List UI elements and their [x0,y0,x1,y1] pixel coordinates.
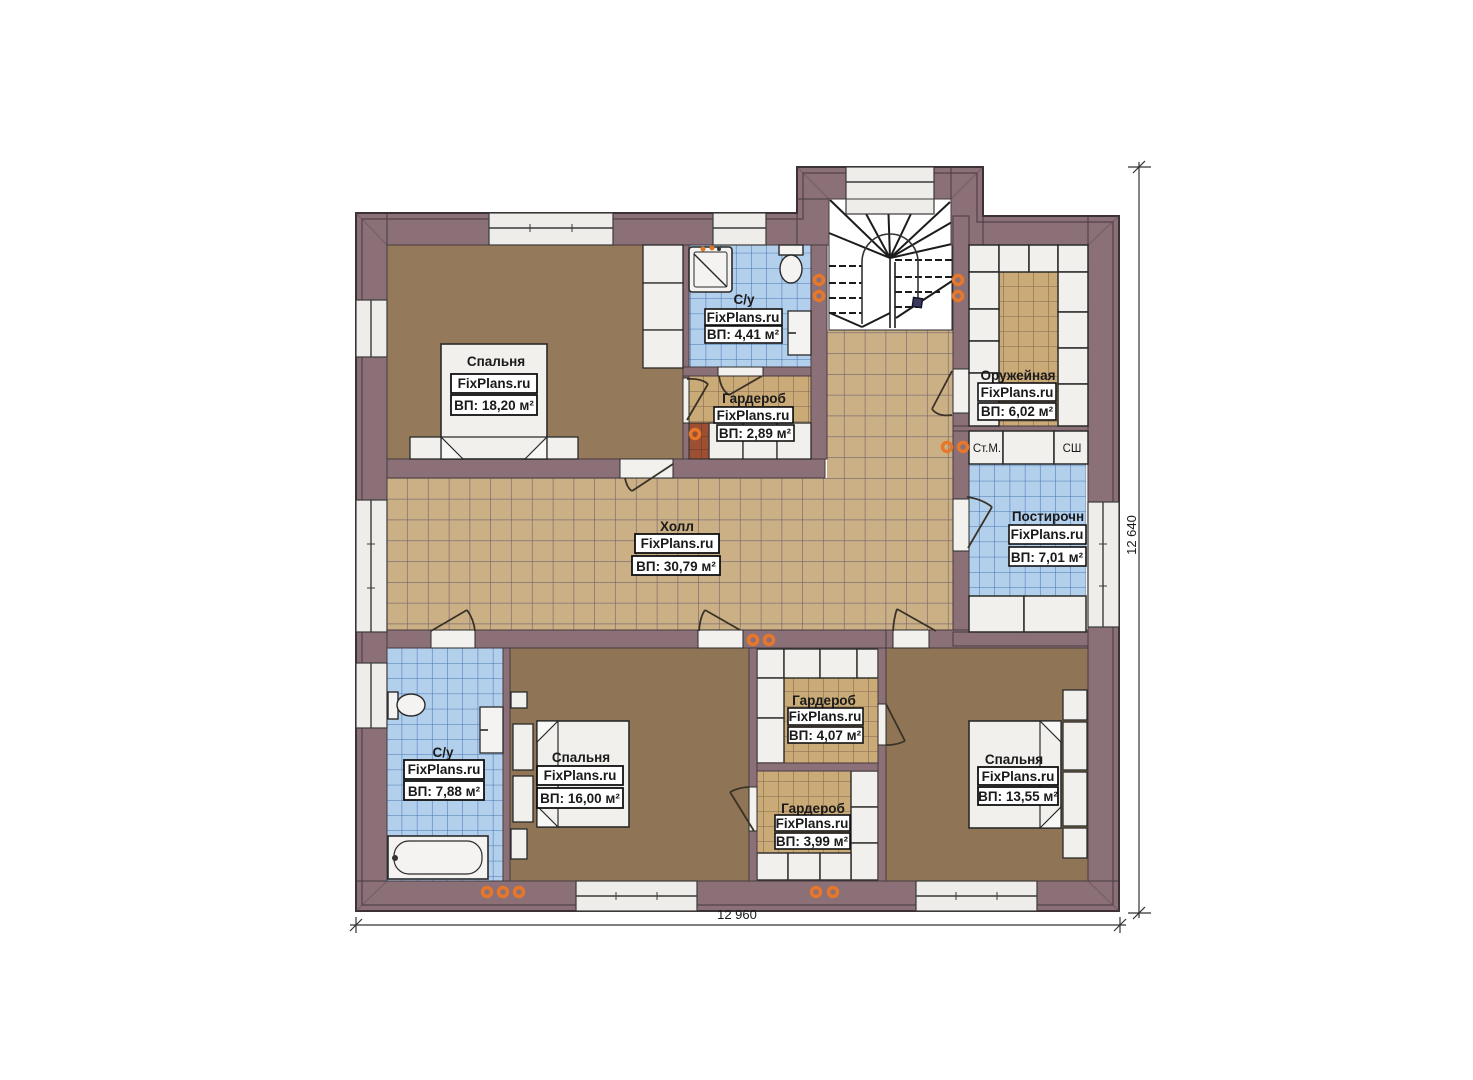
svg-text:FixPlans.ru: FixPlans.ru [789,709,862,724]
svg-text:Холл: Холл [660,519,694,534]
svg-text:Ст.М.: Ст.М. [973,443,1001,455]
svg-text:ВП: 7,88 м²: ВП: 7,88 м² [408,784,481,799]
svg-text:ВП: 30,79 м²: ВП: 30,79 м² [636,559,716,574]
svg-text:ВП: 6,02 м²: ВП: 6,02 м² [981,404,1054,419]
svg-text:С/у: С/у [733,292,755,307]
svg-text:Гардероб: Гардероб [781,801,845,816]
svg-text:Спальня: Спальня [552,750,610,765]
svg-text:Оружейная: Оружейная [981,368,1056,383]
svg-text:ВП: 2,89 м²: ВП: 2,89 м² [719,426,792,441]
svg-text:Постирочн: Постирочн [1012,509,1084,524]
svg-text:ВП: 4,41 м²: ВП: 4,41 м² [707,327,780,342]
svg-text:12 960: 12 960 [717,907,757,922]
svg-text:FixPlans.ru: FixPlans.ru [982,769,1055,784]
svg-text:FixPlans.ru: FixPlans.ru [707,310,780,325]
svg-text:ВП: 13,55 м²: ВП: 13,55 м² [978,789,1058,804]
svg-text:FixPlans.ru: FixPlans.ru [641,536,714,551]
svg-text:FixPlans.ru: FixPlans.ru [544,768,617,783]
svg-text:Спальня: Спальня [985,752,1043,767]
svg-text:ВП: 7,01 м²: ВП: 7,01 м² [1011,550,1084,565]
svg-text:12 640: 12 640 [1124,515,1139,555]
svg-text:FixPlans.ru: FixPlans.ru [1011,527,1084,542]
svg-text:СШ: СШ [1063,443,1082,455]
svg-text:FixPlans.ru: FixPlans.ru [717,408,790,423]
svg-text:ВП: 3,99 м²: ВП: 3,99 м² [776,834,849,849]
svg-text:ВП: 4,07 м²: ВП: 4,07 м² [789,728,862,743]
svg-text:ВП: 18,20 м²: ВП: 18,20 м² [454,398,534,413]
svg-text:ВП: 16,00 м²: ВП: 16,00 м² [540,791,620,806]
svg-text:FixPlans.ru: FixPlans.ru [776,816,849,831]
svg-text:FixPlans.ru: FixPlans.ru [408,762,481,777]
svg-text:Гардероб: Гардероб [792,693,856,708]
svg-text:FixPlans.ru: FixPlans.ru [981,385,1054,400]
svg-text:С/у: С/у [432,745,454,760]
svg-text:Гардероб: Гардероб [722,391,786,406]
svg-text:Спальня: Спальня [467,354,525,369]
svg-text:FixPlans.ru: FixPlans.ru [458,376,531,391]
